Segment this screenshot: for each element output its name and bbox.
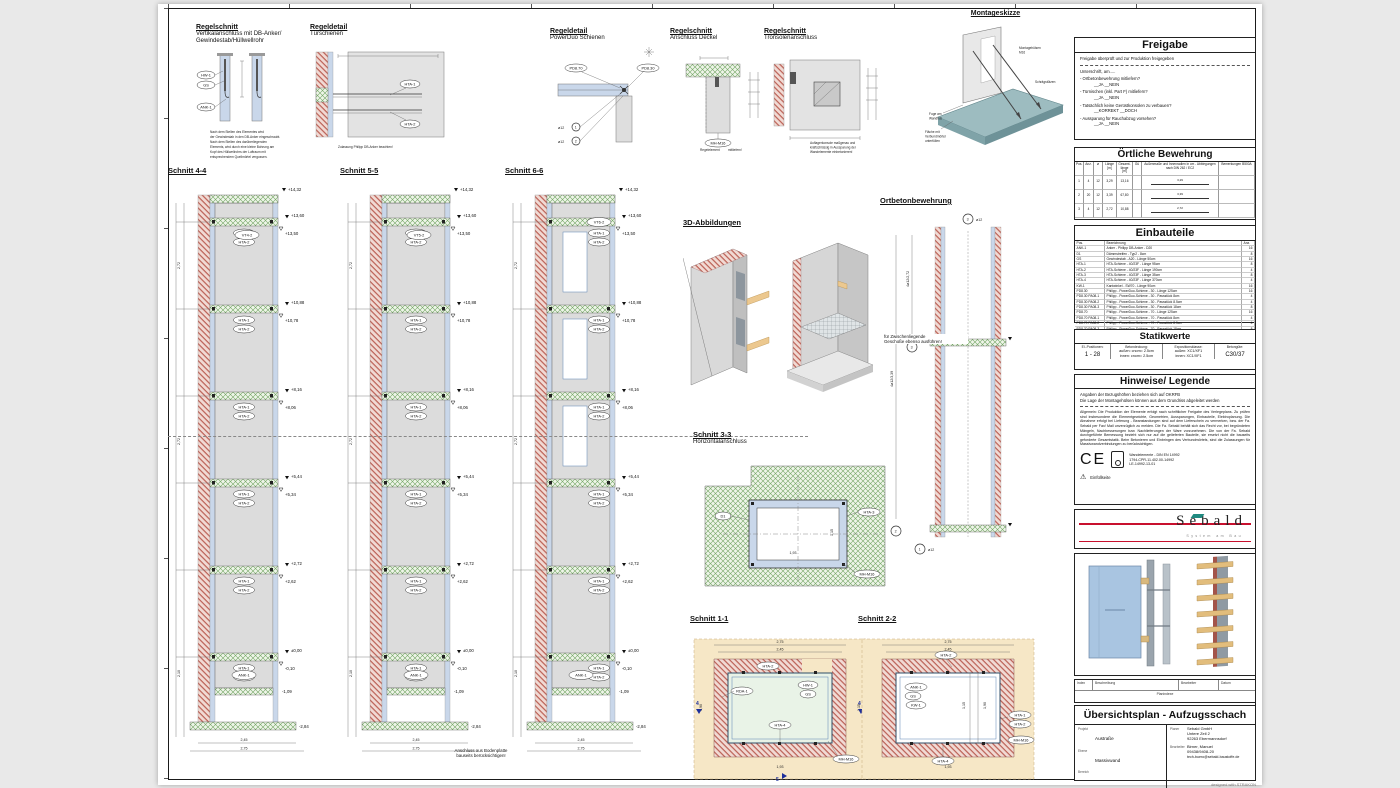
detail-anschluss-deckel: Regelschnitt Anschluss Deckel MH-M16 Reg… [670,28,770,154]
label-mh16: MH-M16 [1008,736,1034,744]
label-hta2-top: HTA-2 [935,651,957,659]
svg-text:HTA-2: HTA-2 [411,588,422,593]
svg-text:ANK-1: ANK-1 [200,104,211,109]
svg-text:Auflagerkonsole maßgenau und: Auflagerkonsole maßgenau und [810,141,855,145]
svg-text:HTA-2: HTA-2 [594,501,605,506]
svg-text:HTA-1: HTA-1 [239,666,250,671]
sebald-rule-bottom [1079,541,1251,542]
svg-text:+13,50: +13,50 [622,231,636,236]
detail-tuerschienen: Regeldetail Türschienen HTA-1 HTA-2 Zula… [310,24,448,156]
svg-text:+5,44: +5,44 [463,474,474,479]
svg-text:2,75: 2,75 [945,640,952,644]
svg-text:HTA-2: HTA-2 [411,240,422,245]
element-mark: VT6-2 [587,218,611,227]
planindex-strip: Index Beschreibung Bearbeiter Datum Plan… [1074,679,1256,703]
drawing-sheet: Regelschnitt Vertikalanschluss mit DB-An… [158,4,1262,785]
detail-tronsole-drawing: Auflagerkonsole maßgenau und kraftschlüs… [764,42,892,154]
svg-text:+8,16: +8,16 [628,387,639,392]
svg-text:ANK-1: ANK-1 [575,673,586,678]
note-zwischengeschosse: für ZwischenliegendeGeschoße ebenso ausf… [884,334,968,344]
section-6-6-drawing: 2,72 2,72 2,10 +14,32 +13,60 +13,50 [505,177,670,761]
svg-text:2: 2 [895,530,897,534]
svg-text:ANK-1: ANK-1 [238,673,249,678]
svg-text:±0,00: ±0,00 [463,648,474,653]
section-title: Schnitt 4-4 [168,166,333,175]
floor-band: +2,72 +2,62 HTA-1 HTA-2 [348,561,474,594]
project-fields: ProjektAustraße EbeneMassivwand Bereich … [1075,725,1167,788]
bewehrung-header: Pos.Anz. øLänge [m] Gesamt- länge [m]Gü … [1075,162,1255,176]
svg-text:+14,32: +14,32 [625,187,639,192]
svg-text:HTA-1: HTA-1 [411,405,422,410]
svg-text:+13,60: +13,60 [291,213,305,218]
svg-text:HTA-1: HTA-1 [239,492,250,497]
svg-text:KW-1: KW-1 [911,703,921,708]
svg-text:+2,72: +2,72 [291,561,302,566]
floor-band: +5,44 +5,34 HTA-1 HTA-2 [176,474,302,507]
svg-text:1,93: 1,93 [790,551,797,555]
svg-text:HTA-4: HTA-4 [938,759,950,764]
svg-text:HTA-1: HTA-1 [405,81,416,86]
svg-text:2,75: 2,75 [241,747,248,751]
svg-text:HTA-2: HTA-2 [594,675,605,680]
svg-text:2,45: 2,45 [777,648,784,652]
svg-text:4ø12/3,39: 4ø12/3,39 [890,371,894,387]
svg-text:PD8.70: PD8.70 [570,65,584,70]
svg-text:GS: GS [910,694,916,699]
svg-text:Wandelemente einbetonieren!: Wandelemente einbetonieren! [810,150,853,154]
label-mh16: MH-M16 [833,755,859,763]
svg-text:HTA-1: HTA-1 [1015,713,1026,718]
abbildungen-3d-drawing [683,229,875,411]
svg-text:+10,88: +10,88 [291,300,305,305]
svg-text:HTA-1: HTA-1 [594,318,605,323]
svg-text:Fuge am: Fuge am [929,112,942,116]
svg-text:-2,84: -2,84 [471,724,481,729]
svg-text:Kopf des Hüllwellrohrs der Luf: Kopf des Hüllwellrohrs der Luftraum mit [210,150,266,154]
svg-text:HTA-2: HTA-2 [239,414,250,419]
einbauteile-rows: ANK-1Anker - Philipp DB-Anker - D2016 D1… [1075,246,1255,337]
svg-text:HW-1: HW-1 [201,72,211,77]
svg-text:4ø12/2,72: 4ø12/2,72 [906,271,910,287]
svg-text:HTA-1: HTA-1 [411,318,422,323]
label-ank1: ANK-1 [197,103,215,111]
svg-text:+10,78: +10,78 [457,318,471,323]
svg-text:Regelelement: Regelelement [700,148,720,152]
svg-text:-1,09: -1,09 [282,689,292,694]
svg-text:+5,44: +5,44 [628,474,639,479]
svg-text:HTA-1: HTA-1 [594,405,605,410]
svg-text:2,10: 2,10 [349,670,353,677]
svg-text:HTA-1: HTA-1 [594,492,605,497]
svg-text:HTA-3: HTA-3 [864,509,875,514]
svg-text:+5,44: +5,44 [291,474,302,479]
svg-text:+2,62: +2,62 [285,579,296,584]
svg-text:kraftschlüssig in Aussparung d: kraftschlüssig in Aussparung der [810,145,857,149]
svg-text:HTA-2: HTA-2 [239,501,250,506]
svg-text:HTA-2: HTA-2 [239,588,250,593]
hinweise-box: Hinweise/ Legende Angaben der Bezugshöhe… [1074,374,1256,505]
svg-text:Verbundmörtel: Verbundmörtel [925,135,946,139]
element-mark: VT4-2 [235,231,259,240]
svg-text:1,93: 1,93 [945,765,952,769]
svg-text:PD8.30: PD8.30 [642,65,656,70]
detail-powerduo: Regeldetail PowerDuo Schienen PD8.70 PD8… [550,28,670,154]
svg-text:+10,88: +10,88 [463,300,477,305]
svg-text:HTA-2: HTA-2 [411,327,422,332]
section-schnitt-6-6: Schnitt 6-6 2,72 2,72 2,10 +14,32 +13,60 [505,166,670,761]
label-hta2: HTA-2 [757,662,779,670]
svg-text:HTA-1: HTA-1 [594,579,605,584]
svg-text:ø12: ø12 [928,548,934,552]
svg-text:HTA-1: HTA-1 [411,666,422,671]
svg-text:2,72: 2,72 [514,262,518,269]
bewehrung-box: Örtliche Bewehrung Pos.Anz. øLänge [m] G… [1074,147,1256,220]
svg-text:+8,06: +8,06 [457,405,468,410]
svg-text:M16: M16 [1019,51,1025,55]
label-ank1: ANK-1 [905,683,927,691]
svg-text:2,75: 2,75 [578,747,585,751]
label-rda1: RDA-1 [731,687,753,695]
svg-text:2,10: 2,10 [177,670,181,677]
svg-text:2,72: 2,72 [349,438,353,445]
svg-text:HTA-2: HTA-2 [239,240,250,245]
plan-1-1-drawing: 2,75 2,45 1,93 1,90 1,15 4 4 5 HTA-2 RDA… [690,625,870,783]
detail-tronsolenanschluss: Regelschnitt Tronsolenanschluss Auflager… [764,28,892,154]
svg-text:+10,78: +10,78 [285,318,299,323]
plan-schnitt-2-2: Schnitt 2-2 2,75 2,45 1,15 1,90 1,93 HTA… [858,614,1038,783]
svg-text:-2,84: -2,84 [636,724,646,729]
svg-text:HW-1: HW-1 [803,683,813,688]
svg-text:2,72: 2,72 [514,438,518,445]
svg-text:HTA-1: HTA-1 [411,579,422,584]
svg-text:ø12: ø12 [976,218,982,222]
svg-text:+8,06: +8,06 [622,405,633,410]
svg-text:+10,78: +10,78 [622,318,636,323]
svg-text:MH-M16: MH-M16 [1014,738,1029,743]
svg-text:+8,16: +8,16 [463,387,474,392]
label-pd870: PD8.70 [565,64,587,72]
detail-title: Regelschnitt [196,24,314,31]
svg-text:-0,10: -0,10 [457,666,467,671]
label-hta1: HTA-1 [400,80,420,88]
label-hta4: HTA-4 [932,757,954,765]
svg-text:2,45: 2,45 [413,738,420,742]
svg-text:Fläche mit: Fläche mit [925,130,940,134]
svg-text:3: 3 [911,346,913,350]
label-hw1: HW-1 [798,681,818,689]
anchor-mark: ANK-1 [404,671,428,680]
freigabe-question: - Türnischen (inkl. Part F) mitliefern? … [1080,89,1250,100]
shaft-render-1 [683,249,769,385]
statikwerte-box: Statikwerte El.-Positionen:1 - 28 Betond… [1074,329,1256,370]
title-block: Übersichtsplan - Aufzugsschach ProjektAu… [1074,705,1256,781]
plan-schnitt-3-3: Schnitt 3-3 Horizontalanschluss 1,93 1,1… [693,430,893,594]
product-render-drawing [1075,554,1255,675]
label-mh16: MH-M16 [705,139,731,147]
note-bodenplatte: Anschluss aus Bodenplattebauseits berück… [396,748,566,758]
svg-text:+8,06: +8,06 [285,405,296,410]
svg-text:HTA-2: HTA-2 [594,327,605,332]
svg-text:4: 4 [696,701,699,707]
svg-text:2,72: 2,72 [349,262,353,269]
svg-text:+5,34: +5,34 [622,492,633,497]
svg-text:HTA-2: HTA-2 [411,501,422,506]
abbildungen-3d: 3D-Abbildungen [683,218,875,411]
label-hta3: HTA-3 [858,508,880,516]
svg-text:RDA-1: RDA-1 [736,689,748,694]
svg-text:ANK-1: ANK-1 [410,673,421,678]
plan-title: Übersichtsplan - Aufzugsschach [1075,706,1255,725]
label-hta2-r: HTA-2 [1009,720,1031,728]
detail-anschluss-deckel-drawing: MH-M16 Regelelement mitliefern! [670,42,770,154]
svg-text:+13,60: +13,60 [463,213,477,218]
einbauteile-box: Einbauteile Pos.BezeichnungAnz. ANK-1Ank… [1074,225,1256,323]
detail-vertikalanschluss-drawing: HW-1 GS ANK-1 Nach dem Stellen des Eleme… [196,45,314,163]
warning-icon: ⚠ [1080,474,1086,481]
svg-text:±0,00: ±0,00 [628,648,639,653]
floor-band: +10,88 +10,78 HTA-1 HTA-2 [176,300,305,333]
svg-text:-0,10: -0,10 [285,666,295,671]
svg-text:Nach dem Stellen des Elementes: Nach dem Stellen des Elementes wird [210,130,264,134]
svg-text:+14,32: +14,32 [460,187,474,192]
svg-text:5: 5 [776,777,779,783]
svg-text:Montagehülsen: Montagehülsen [1019,46,1041,50]
svg-text:+5,34: +5,34 [457,492,468,497]
label-gs: GS [905,692,921,700]
section-5-5-drawing: 2,72 2,72 2,10 +14,32 +13,60 +13,50 HTA-… [340,177,505,761]
freigabe-questions: - Ortbetonbewehrung mitliefern? __JA __N… [1080,76,1250,127]
svg-text:2,75: 2,75 [777,640,784,644]
svg-text:unterfüllen: unterfüllen [925,139,940,143]
svg-text:+8,16: +8,16 [291,387,302,392]
svg-text:1,15: 1,15 [962,702,966,709]
label-hta4: HTA-4 [769,721,791,729]
svg-text:2: 2 [575,139,577,143]
svg-text:3: 3 [967,218,969,222]
svg-text:Schrägstützen: Schrägstützen [1035,80,1056,84]
svg-text:HTA-2: HTA-2 [239,327,250,332]
sebald-logo-text: Sebald [1176,513,1247,530]
svg-text:+14,32: +14,32 [288,187,302,192]
svg-text:-2,84: -2,84 [299,724,309,729]
svg-text:1,90: 1,90 [983,702,987,709]
anchor-mark: ANK-1 [232,671,256,680]
svg-text:HTA-2: HTA-2 [594,240,605,245]
plan-schnitt-1-1: Schnitt 1-1 2,75 2,45 1,93 1,90 1,15 4 4… [690,614,870,783]
label-d1: D1 [715,512,731,520]
label-pd830: PD8.30 [637,64,659,72]
ce-mark: CE [1080,451,1106,469]
freigabe-question: - Aussparung für Rauchabzug vorsehen? __… [1080,116,1250,127]
svg-text:1: 1 [575,125,577,129]
svg-text:HTA-2: HTA-2 [763,664,774,669]
svg-text:GS: GS [805,692,811,697]
svg-text:HTA-2: HTA-2 [405,121,416,126]
svg-text:HTA-1: HTA-1 [239,405,250,410]
svg-text:+10,88: +10,88 [628,300,642,305]
svg-text:1,93: 1,93 [777,765,784,769]
label-mh16: MH-M16 [854,570,880,578]
svg-text:Wandfuß: Wandfuß [929,117,942,121]
ce-cert-lines: Wandelemente - DIN EN 14992 1794-CPR-11.… [1129,453,1179,467]
label-hta1-r: HTA-1 [1009,711,1031,719]
floor-band: +13,60 +13,50 HTA-1 HTA-2 [348,213,477,246]
detail-vertikalanschluss: Regelschnitt Vertikalanschluss mit DB-An… [196,24,314,163]
svg-text:+2,62: +2,62 [457,579,468,584]
svg-text:Zulassung Philipp DB-Anker bea: Zulassung Philipp DB-Anker beachten! [338,145,393,149]
label-hta2: HTA-2 [400,120,420,128]
floor-band: +8,16 +8,06 HTA-1 HTA-2 [176,387,302,420]
section-schnitt-4-4: Schnitt 4-4 2,72 2,72 2,10 +14,32 +13,60… [168,166,333,761]
label-hw1: HW-1 [197,71,215,79]
floor-band: +13,60 +13,50 HTA-1 HTA-2 [176,213,305,246]
plot-stamp: designed with STRAKON [928,782,1256,787]
svg-text:HTA-1: HTA-1 [239,318,250,323]
freigabe-box: Freigabe Freigabe überprüft und zur Prod… [1074,37,1256,140]
svg-text:+13,60: +13,60 [628,213,642,218]
detail-powerduo-drawing: PD8.70 PD8.30 ø12 1 ø12 2 [550,42,670,154]
svg-text:HTA-1: HTA-1 [594,231,605,236]
svg-text:HTA-1: HTA-1 [239,579,250,584]
svg-text:HTA-1: HTA-1 [594,666,605,671]
montageskizze-drawing: Montagehülsen M16 Schrägstützen Fuge am … [923,17,1068,155]
svg-text:VT5-2: VT5-2 [414,233,425,238]
svg-text:+2,72: +2,72 [463,561,474,566]
floor-band: +2,72 +2,62 HTA-1 HTA-2 [176,561,302,594]
svg-text:entsprechendem Quellmörtel ver: entsprechendem Quellmörtel vergossen. [210,155,268,159]
svg-text:ø12: ø12 [558,126,564,130]
plan-3-3-drawing: 1,93 1,15 D1 HTA-3 MH-M16 [693,446,893,594]
svg-text:+13,50: +13,50 [457,231,471,236]
plan-2-2-drawing: 2,75 2,45 1,15 1,90 1,93 HTA-2 ANK-1 GS … [858,625,1038,783]
section-4-4-drawing: 2,72 2,72 2,10 +14,32 +13,60 +13,50 HTA-… [168,177,333,761]
floor-band: +5,44 +5,34 HTA-1 HTA-2 [348,474,474,507]
label-gs: GS [800,690,816,698]
montageskizze: Montageskizze Montagehülsen M16 Schrägst… [923,10,1068,155]
anchor-mark: ANK-1 [569,671,593,680]
svg-text:+2,62: +2,62 [622,579,633,584]
svg-text:2,72: 2,72 [177,262,181,269]
svg-text:2,72: 2,72 [177,438,181,445]
svg-text:ø12: ø12 [558,140,564,144]
bewehrung-rows: 14 123,29 13,16 3,29 220 123,39 67,80 3,… [1075,176,1255,218]
svg-text:GS: GS [203,82,209,87]
planner-fields: Planer Sebald GmbH Untere Zeil 2 92263 E… [1167,725,1255,788]
detail-tuerschienen-drawing: HTA-1 HTA-2 Zulassung Philipp DB-Anker b… [310,38,448,156]
svg-text:Elements, wird durch eine klei: Elements, wird durch eine kleine Bohrung… [210,145,274,149]
sebald-logo-box: Sebald System am Bau [1074,509,1256,549]
svg-text:-1,09: -1,09 [454,689,464,694]
wall-panel-render [1089,560,1170,666]
svg-text:+2,72: +2,72 [628,561,639,566]
svg-text:VT6-2: VT6-2 [594,220,605,225]
svg-text:HTA-2: HTA-2 [594,588,605,593]
sebald-tagline: System am Bau [1186,534,1243,538]
viewer-background: Regelschnitt Vertikalanschluss mit DB-An… [0,0,1400,788]
svg-text:2,10: 2,10 [514,670,518,677]
element-mark: VT5-2 [407,231,431,240]
svg-text:HTA-2: HTA-2 [1015,722,1026,727]
svg-text:VT4-2: VT4-2 [242,233,253,238]
svg-text:+13,50: +13,50 [285,231,299,236]
certification-icon [1111,451,1124,468]
svg-text:MH-M16: MH-M16 [839,757,854,762]
floor-band: +10,88 +10,78 HTA-1 HTA-2 [348,300,477,333]
svg-text:+5,34: +5,34 [285,492,296,497]
frame-ticks-top [168,4,1256,8]
svg-text:HTA-4: HTA-4 [775,723,787,728]
svg-text:2,45: 2,45 [241,738,248,742]
shaft-render-2 [787,243,873,392]
svg-text:-0,10: -0,10 [622,666,632,671]
floor-band: +8,16 +8,06 HTA-1 HTA-2 [348,387,474,420]
svg-text:HTA-2: HTA-2 [941,653,952,658]
rail-tower-render [1197,555,1233,668]
freigabe-question: - Ortbetonbewehrung mitliefern? __JA __N… [1080,76,1250,87]
svg-text:MH-M16: MH-M16 [711,140,726,145]
label-gs: GS [197,81,215,89]
section-schnitt-5-5: Schnitt 5-5 2,72 2,72 2,10 +14,32 +13,60… [340,166,505,761]
svg-text:2,45: 2,45 [578,738,585,742]
svg-text:±0,00: ±0,00 [291,648,302,653]
svg-text:HTA-2: HTA-2 [411,414,422,419]
product-render-box [1074,553,1256,676]
svg-text:HTA-1: HTA-1 [411,492,422,497]
ortbeton-drawing: 3 ø12 4ø12/2,72 3 4ø12/3,39 2 1 ø12 [880,207,1030,563]
svg-text:1,15: 1,15 [830,529,834,536]
svg-text:1: 1 [919,548,921,552]
label-kw1: KW-1 [906,701,926,709]
svg-text:ANK-1: ANK-1 [910,685,921,690]
svg-text:Nach dem Stellen des darüberli: Nach dem Stellen des darüberliegenden [210,140,267,144]
svg-text:D1: D1 [721,513,726,518]
freigabe-title: Freigabe [1075,38,1255,53]
svg-text:mitliefern!: mitliefern! [728,148,742,152]
freigabe-question: - Tatsächlich keine Gerüstkonsolen zu ve… [1080,103,1250,114]
svg-text:-1,09: -1,09 [619,689,629,694]
svg-text:HTA-2: HTA-2 [594,414,605,419]
svg-text:der Gewindestab in den DB-Anke: der Gewindestab in den DB-Anker eingesch… [210,135,280,139]
ortbetonbewehrung: Ortbetonbewehrung 3 ø12 4ø12/2,72 3 4ø12… [880,196,1030,563]
svg-text:MH-M16: MH-M16 [860,571,875,576]
